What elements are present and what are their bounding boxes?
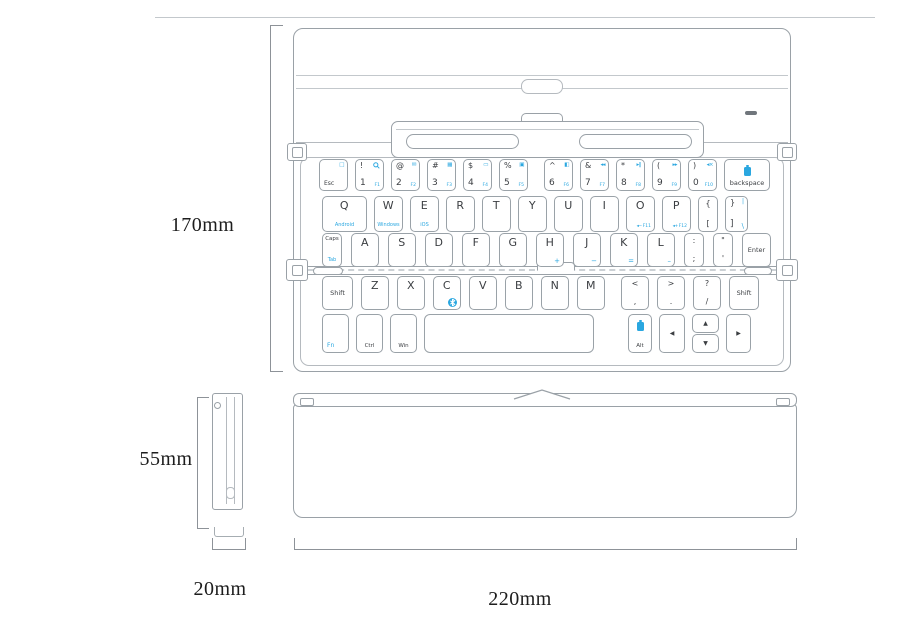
key-c: C [433, 276, 461, 310]
height-dimension-line [270, 25, 271, 372]
key-i: I [590, 196, 619, 232]
fold-connector-right [744, 267, 772, 275]
key-shift-left: Shift [322, 276, 353, 310]
front-view-top-band [293, 393, 797, 407]
key-f: F [462, 233, 490, 267]
diagram-canvas: 170mm Esc□!1F1@2✉F2#3▦F3$4▭F4%5▣F5^6◧F6&… [0, 0, 899, 622]
key-2: @2✉F2 [391, 159, 420, 191]
folded-side-bottom-cap [214, 527, 244, 537]
key-4: $4▭F4 [463, 159, 492, 191]
key-row-5: FnCtrlWinAlt◀▲▼▶ [322, 314, 751, 353]
cover-crease-line-1 [296, 75, 788, 76]
folded-width-dimension-line [212, 549, 246, 550]
key-m: M [577, 276, 605, 310]
hinge-pin-icon [292, 147, 303, 158]
key-period: >. [657, 276, 685, 310]
key-6: ^6◧F6 [544, 159, 573, 191]
fold-connector-left [313, 267, 343, 275]
key-3: #3▦F3 [427, 159, 456, 191]
front-center-ridge-icon [513, 388, 571, 400]
grid-icon: ▦ [447, 162, 452, 168]
key-v: V [469, 276, 497, 310]
playpause-icon: ▸‖ [636, 162, 641, 168]
key-row-4: ShiftZXCVBNM<,>.?/Shift [322, 276, 759, 310]
width-dimension-label: 220mm [480, 588, 560, 611]
key-shift-right: Shift [729, 276, 759, 310]
key-a: A [351, 233, 379, 267]
key-bracket-left: {[ [698, 196, 718, 232]
rect-icon: ▭ [483, 162, 488, 168]
height-dimension-label: 170mm [145, 214, 260, 237]
key-t: T [482, 196, 511, 232]
cover-latch-tab [521, 79, 563, 94]
key-backspace: backspace [724, 159, 770, 191]
key-y: Y [518, 196, 547, 232]
mute-icon: ◂× [707, 162, 713, 168]
hinge-pin-icon [782, 147, 793, 158]
battery-icon [637, 320, 644, 331]
key-p: P◂+F12 [662, 196, 691, 232]
key-arrow-up-down: ▲▼ [692, 314, 719, 353]
key-b: B [505, 276, 533, 310]
hinge-pin-icon [292, 265, 303, 276]
top-border-line [155, 17, 875, 18]
key-row-3: CapsTabASDFGH+J−K=L–:;"'Enter [322, 233, 771, 267]
mail-icon: ✉ [412, 162, 416, 168]
key-0: )0◂×F10 [688, 159, 717, 191]
key-enter: Enter [742, 233, 771, 267]
search-icon [373, 164, 380, 171]
prev-icon: ◂◂ [600, 162, 605, 168]
key-arrow-up: ▲ [692, 314, 719, 333]
folded-height-dimension-line [197, 397, 198, 528]
bluetooth-icon [448, 298, 457, 307]
keyboard-top-view: Esc□!1F1@2✉F2#3▦F3$4▭F4%5▣F5^6◧F6&7◂◂F7*… [293, 28, 791, 372]
key-alt: Alt [628, 314, 652, 353]
hinge-top-left [287, 143, 307, 161]
key-9: (9▸▸F9 [652, 159, 681, 191]
width-tick-left [294, 538, 295, 550]
key-w: WWindows [374, 196, 403, 232]
folded-side-view [212, 393, 243, 510]
key-arrow-right: ▶ [726, 314, 751, 353]
key-fn: Fn [322, 314, 349, 353]
width-tick-right [796, 538, 797, 550]
fold-line-lower [294, 274, 790, 275]
key-n: N [541, 276, 569, 310]
key-slash: ?/ [693, 276, 721, 310]
folded-width-dimension-label: 20mm [192, 578, 248, 601]
folded-height-dimension-label: 55mm [138, 448, 194, 471]
height-dimension-tick-top [270, 25, 283, 26]
lock-icon: □ [339, 162, 344, 168]
key-r: R [446, 196, 475, 232]
hinge-circle-icon [214, 402, 221, 409]
front-latch-left [300, 398, 314, 406]
key-k: K= [610, 233, 638, 267]
key-z: Z [361, 276, 389, 310]
key-o: O◂−F11 [626, 196, 655, 232]
stand-inner-line [396, 129, 699, 130]
key-row-1: Esc□!1F1@2✉F2#3▦F3$4▭F4%5▣F5^6◧F6&7◂◂F7*… [319, 159, 770, 191]
key-l: L– [647, 233, 675, 267]
tablet-stand-bar [391, 121, 704, 158]
hinge-top-right [777, 143, 797, 161]
battery-icon [744, 165, 751, 176]
hinge-mid-left [286, 259, 308, 281]
volup-icon: ◂+ [673, 225, 678, 230]
key-space [424, 314, 594, 353]
key-u: U [554, 196, 583, 232]
key-x: X [397, 276, 425, 310]
front-latch-right [776, 398, 790, 406]
key-arrow-down: ▼ [692, 334, 719, 353]
panel-icon: ▣ [519, 162, 524, 168]
next-icon: ▸▸ [672, 162, 677, 168]
key-d: D [425, 233, 453, 267]
key-5: %5▣F5 [499, 159, 528, 191]
key-7: &7◂◂F7 [580, 159, 609, 191]
key-j: J− [573, 233, 601, 267]
key-bracket-right: }]|\ [725, 196, 748, 232]
key-s: S [388, 233, 416, 267]
key-esc: Esc□ [319, 159, 348, 191]
hinge-pin-icon [782, 265, 793, 276]
key-8: *8▸‖F8 [616, 159, 645, 191]
width-dimension-line [294, 549, 797, 550]
led-indicator [745, 111, 757, 115]
stand-slot-left [406, 134, 519, 149]
key-e: EiOS [410, 196, 439, 232]
key-q: QAndroid [322, 196, 367, 232]
key-quote: "' [713, 233, 733, 267]
height-dimension-tick-bottom [270, 371, 283, 372]
voldown-icon: ◂− [637, 225, 642, 230]
hinge-mid-right [776, 259, 798, 281]
front-view-body [293, 404, 797, 518]
screen-icon: ◧ [564, 162, 569, 168]
key-row-2: QAndroidWWindowsEiOSRTYUIO◂−F11P◂+F12{[}… [322, 196, 748, 232]
folded-width-tick-right [245, 538, 246, 550]
key-semicolon: :; [684, 233, 704, 267]
side-inner-pill [226, 487, 235, 499]
key-1: !1F1 [355, 159, 384, 191]
folded-width-tick-left [212, 538, 213, 550]
folded-height-tick-bottom [197, 528, 209, 529]
stand-slot-right [579, 134, 692, 149]
key-caps-tab: CapsTab [322, 233, 342, 267]
folded-height-tick-top [197, 397, 209, 398]
key-comma: <, [621, 276, 649, 310]
key-arrow-left: ◀ [659, 314, 685, 353]
key-h: H+ [536, 233, 564, 267]
key-win: Win [390, 314, 417, 353]
key-ctrl: Ctrl [356, 314, 383, 353]
key-g: G [499, 233, 527, 267]
